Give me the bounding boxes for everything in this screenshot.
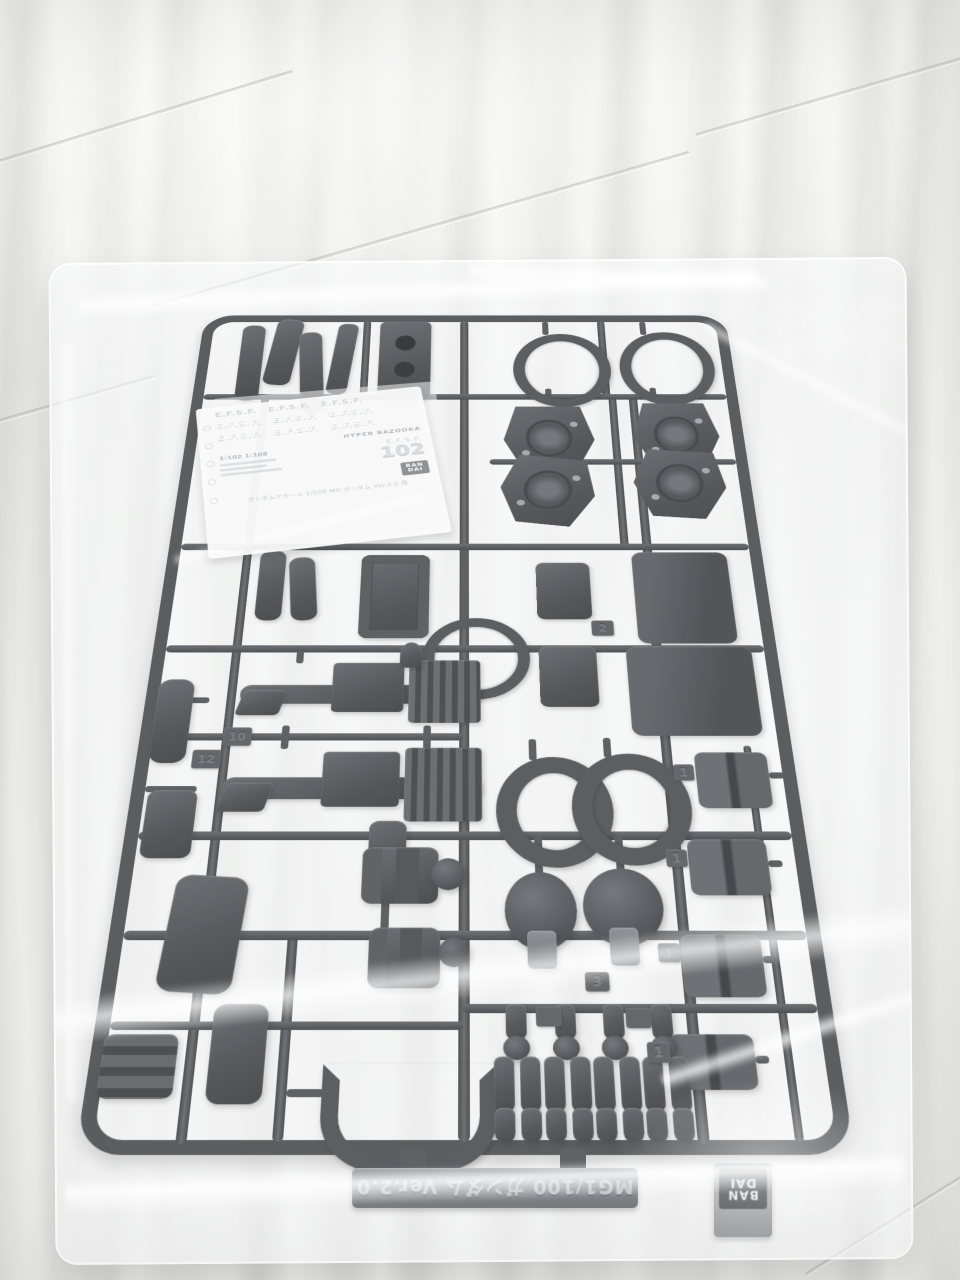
- piston-bullet: [572, 1108, 594, 1143]
- gate-stick: [769, 772, 785, 778]
- bazooka-nose: [234, 690, 288, 715]
- bazooka-scope: [400, 642, 423, 667]
- runner-area: E.F.S.F. E.F.S.F. E.F.S.F. E.F.S.F. E.F.…: [0, 0, 960, 1280]
- piston-bullet: [646, 1108, 669, 1143]
- runner-rail: [153, 733, 464, 740]
- piston-cyl: [570, 1057, 593, 1112]
- part-stacked-bars: [95, 1034, 179, 1099]
- piston-cyl: [593, 1057, 617, 1112]
- piston-bullet: [672, 1108, 696, 1143]
- bandai-logo: BAN DAI: [400, 460, 430, 476]
- gate-stick: [755, 1056, 769, 1064]
- bandai-stamp-line1: BAN: [727, 1189, 758, 1201]
- gate-stick: [461, 550, 468, 620]
- decal-registration-holes: [203, 426, 218, 505]
- piston-cyl: [642, 1057, 667, 1112]
- runner-rail: [458, 321, 470, 1142]
- piston-cyl: [619, 1057, 643, 1112]
- part-rod: [204, 1004, 269, 1104]
- part-number-tag: 3: [585, 972, 610, 992]
- decal-sheet: E.F.S.F. E.F.S.F. E.F.S.F. E.F.S.F. E.F.…: [196, 386, 452, 559]
- part-number-tag: 1: [646, 1042, 671, 1063]
- dome-socket: [609, 928, 641, 966]
- piston-cyl: [520, 1057, 542, 1112]
- part-knob: [438, 938, 469, 967]
- bandai-logo-line2: DAI: [408, 467, 424, 473]
- bazooka-rear-stack: [403, 748, 482, 822]
- bazooka-rear-stack: [408, 660, 481, 722]
- piston-top: [650, 1004, 674, 1039]
- piston-top: [602, 1004, 625, 1039]
- part-double-cylinder: [694, 752, 774, 808]
- piston-cyl: [544, 1057, 566, 1112]
- part-number-tag: 1: [673, 764, 695, 780]
- piston-bullet: [622, 1108, 645, 1143]
- part-backpack: [631, 552, 739, 643]
- bazooka-body-box: [320, 752, 400, 807]
- gate-stick: [639, 322, 646, 335]
- gate-stick: [423, 725, 431, 749]
- molded-plate-text: MG1/100 ガンダム Ver.2.0: [356, 1175, 634, 1202]
- gate-stick: [768, 860, 783, 867]
- part-number-tag: 2: [591, 620, 614, 635]
- photo-model-kit-runner-in-bag: E.F.S.F. E.F.S.F. E.F.S.F. E.F.S.F. E.F.…: [0, 0, 960, 1280]
- runner-rail: [110, 1022, 464, 1030]
- decal-unit-number: 102: [379, 441, 427, 460]
- bandai-stamp-line2: DAI: [730, 1177, 757, 1189]
- part-number-tag: 1: [657, 943, 681, 962]
- part-number-tag: 10: [222, 727, 252, 745]
- part-backpack: [625, 646, 763, 735]
- piston-bullet: [596, 1108, 619, 1143]
- brand-stamp-tab: BAN DAI: [714, 1163, 772, 1237]
- part-knob: [431, 858, 465, 890]
- runner-sprue: E.F.S.F. E.F.S.F. E.F.S.F. E.F.S.F. E.F.…: [75, 315, 855, 1155]
- gate-stick: [286, 1089, 324, 1097]
- piston-cyl: [494, 1057, 515, 1112]
- piston-top: [505, 1004, 527, 1039]
- part-clamp-block: [535, 563, 592, 620]
- part-clamp-block: [538, 646, 599, 706]
- part-square-frame: [358, 555, 430, 638]
- part-number-tag: [625, 1008, 652, 1028]
- part-double-cylinder: [679, 935, 767, 998]
- part-small-link: [289, 557, 318, 622]
- part-fork: [361, 847, 439, 903]
- part-bazooka-lower: [218, 748, 482, 823]
- part-bazooka-upper: [237, 660, 481, 725]
- molded-text-plate: MG1/100 ガンダム Ver.2.0: [352, 1168, 638, 1208]
- dome-socket: [527, 931, 558, 969]
- piston-bullet: [494, 1108, 515, 1143]
- part-double-cylinder: [686, 839, 772, 895]
- piston-cyl: [668, 1057, 693, 1112]
- gate-stick: [603, 738, 612, 758]
- gate-stick: [762, 956, 776, 963]
- part-fork: [367, 928, 440, 989]
- gate-stick: [542, 322, 549, 335]
- part-h-link: [139, 790, 199, 858]
- part-number-tag: [536, 1006, 562, 1026]
- bandai-stamp-logo: BAN DAI: [719, 1169, 767, 1209]
- piston-bullet: [521, 1108, 543, 1143]
- piston-bullet: [545, 1108, 567, 1143]
- part-number-tag: 12: [191, 750, 222, 769]
- gate-stick: [528, 739, 536, 760]
- bazooka-body-box: [330, 663, 404, 712]
- part-number-tag: 1: [665, 849, 688, 867]
